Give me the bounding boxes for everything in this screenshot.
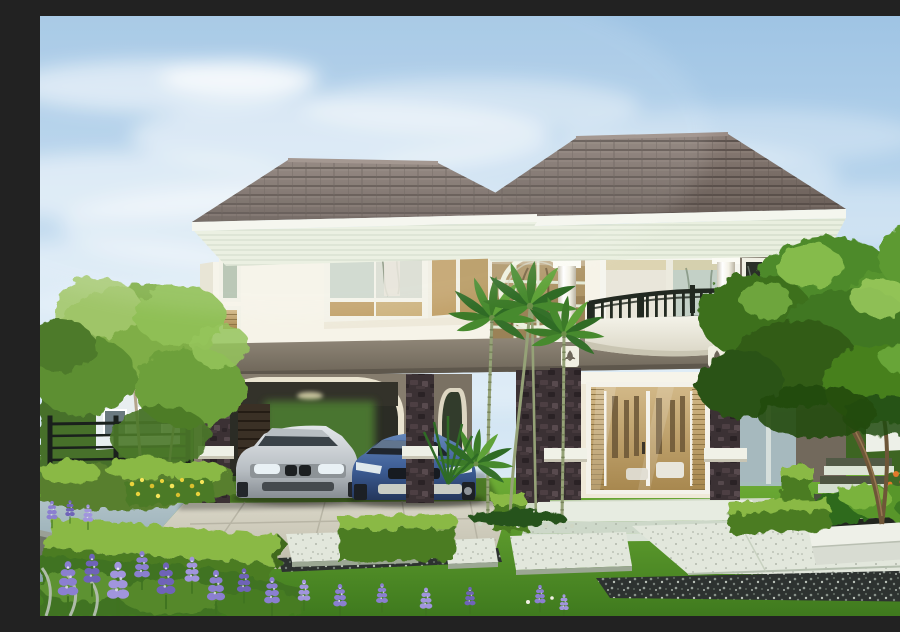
grille [285, 465, 297, 476]
carport-light [297, 392, 323, 400]
headlight [318, 464, 344, 474]
hedge-center [337, 514, 458, 562]
white-flower [526, 600, 530, 604]
house-exterior-photo [40, 16, 900, 616]
hedge-top [782, 466, 812, 478]
palm-bed [470, 510, 566, 526]
hedge-right-of-porch [728, 498, 830, 534]
grille [299, 465, 311, 476]
entrance-door [586, 382, 710, 494]
headlight [254, 464, 280, 474]
interior-furniture [656, 462, 684, 478]
stone-pillar-carport-right [402, 374, 438, 503]
stone-pillar-entrance-left [544, 368, 587, 500]
wheel [237, 482, 248, 497]
wheel [354, 484, 367, 500]
flowers-yellow [124, 478, 216, 506]
stepping-stone [510, 532, 632, 575]
white-flower [550, 596, 554, 600]
door-handle [642, 442, 645, 454]
